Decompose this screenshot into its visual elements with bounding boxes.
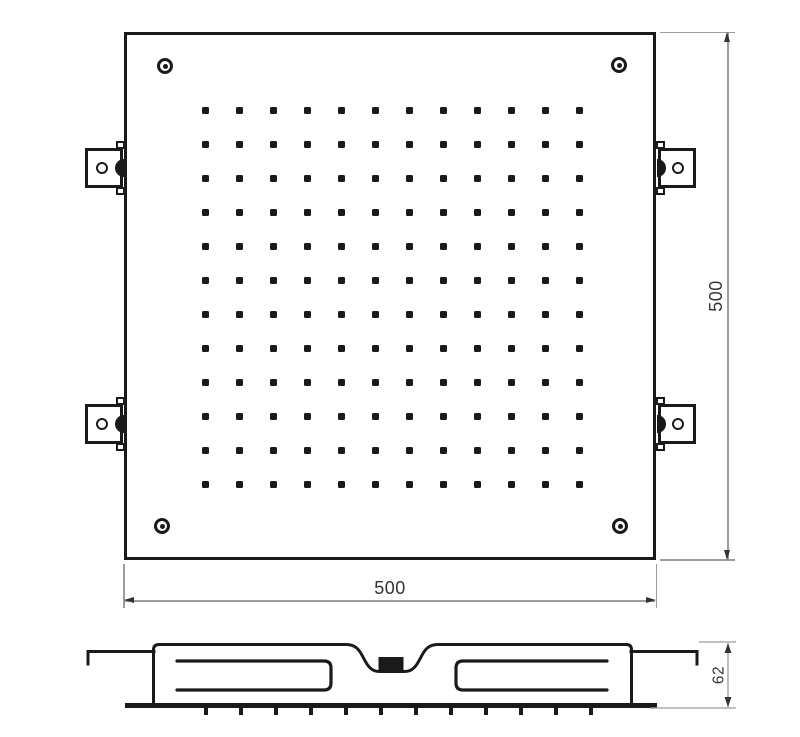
side-bracket-hook-right: [631, 652, 697, 665]
side-chamber-left: [177, 661, 331, 690]
side-inlet-connector: [379, 657, 404, 672]
side-body-outline: [154, 645, 632, 704]
side-view: 62: [0, 0, 800, 737]
side-chamber-right: [456, 661, 607, 690]
dim-depth-arrow-bottom: [725, 697, 732, 707]
technical-drawing-canvas: 500 500 62: [0, 0, 800, 737]
side-bracket-hook-left: [88, 652, 154, 665]
dim-depth-arrow-top: [725, 643, 732, 653]
dim-depth-label: 62: [711, 666, 728, 684]
side-nozzle-ticks: [206, 708, 591, 715]
